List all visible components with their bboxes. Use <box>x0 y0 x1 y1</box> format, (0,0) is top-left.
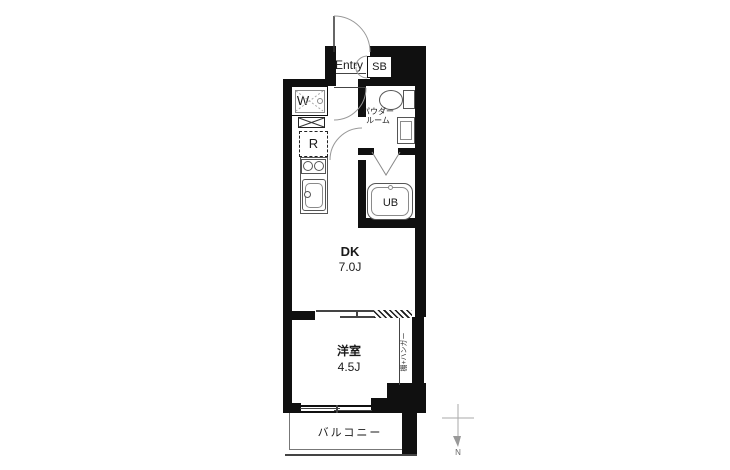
shoebox-door-arc-top <box>356 56 367 66</box>
hall-door-arc <box>334 88 366 120</box>
north-arrow-head <box>453 436 461 447</box>
linework-layer <box>0 0 730 470</box>
entrance-door-arc <box>334 16 370 52</box>
powder-room-door-arc <box>330 128 362 160</box>
floor-plan: Entry SB W R パウダー ルーム UB DK 7.0J 洋室 4.5J… <box>0 0 730 470</box>
bath-folding-door <box>372 152 400 175</box>
shoebox-door-arc-bottom <box>356 67 367 78</box>
